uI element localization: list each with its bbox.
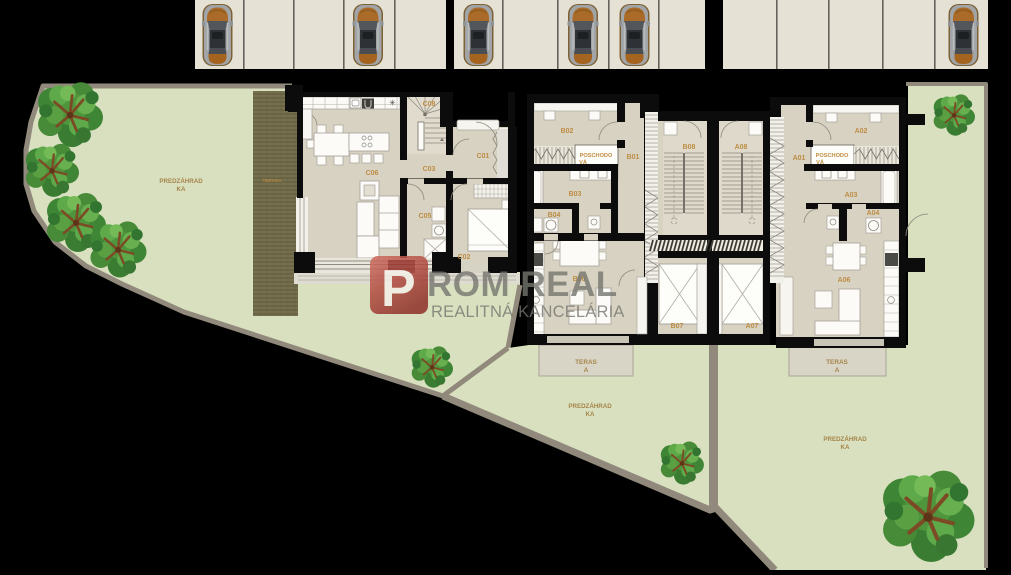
svg-text:POSCHODO: POSCHODO [816, 153, 849, 159]
svg-text:A: A [584, 367, 589, 374]
svg-text:KA: KA [177, 186, 186, 193]
svg-text:B08: B08 [683, 144, 696, 151]
svg-text:C06: C06 [366, 170, 379, 177]
svg-text:A07: A07 [746, 323, 759, 330]
svg-text:A02: A02 [855, 128, 868, 135]
svg-text:C05: C05 [419, 213, 432, 220]
svg-text:✳: ✳ [389, 99, 396, 108]
svg-text:C01: C01 [477, 153, 490, 160]
svg-text:TERAS: TERAS [826, 359, 848, 366]
svg-text:B07: B07 [671, 323, 684, 330]
svg-text:KA: KA [841, 444, 850, 451]
svg-text:B02: B02 [561, 128, 574, 135]
svg-text:ROM REAL: ROM REAL [427, 265, 618, 304]
svg-text:POSCHODO: POSCHODO [580, 153, 613, 159]
svg-text:KA: KA [586, 411, 595, 418]
svg-text:TERAS: TERAS [575, 359, 597, 366]
svg-text:P: P [381, 260, 416, 318]
svg-text:TERASA: TERASA [263, 178, 283, 183]
svg-text:A08: A08 [735, 144, 748, 151]
svg-text:REALITNÁ KANCELÁRIA: REALITNÁ KANCELÁRIA [431, 302, 625, 321]
svg-text:A: A [835, 367, 840, 374]
svg-text:A06: A06 [838, 277, 851, 284]
svg-text:A04: A04 [867, 210, 880, 217]
svg-text:A03: A03 [845, 192, 858, 199]
svg-text:C08: C08 [423, 101, 436, 108]
svg-text:A01: A01 [793, 155, 806, 162]
svg-text:B03: B03 [569, 191, 582, 198]
svg-text:C02: C02 [458, 254, 471, 261]
svg-text:PREDZÁHRAD: PREDZÁHRAD [823, 436, 867, 443]
svg-text:PREDZÁHRAD: PREDZÁHRAD [159, 178, 203, 185]
svg-text:C03: C03 [423, 166, 436, 173]
svg-text:B01: B01 [627, 154, 640, 161]
svg-text:B04: B04 [548, 212, 561, 219]
svg-text:PREDZÁHRAD: PREDZÁHRAD [568, 403, 612, 410]
